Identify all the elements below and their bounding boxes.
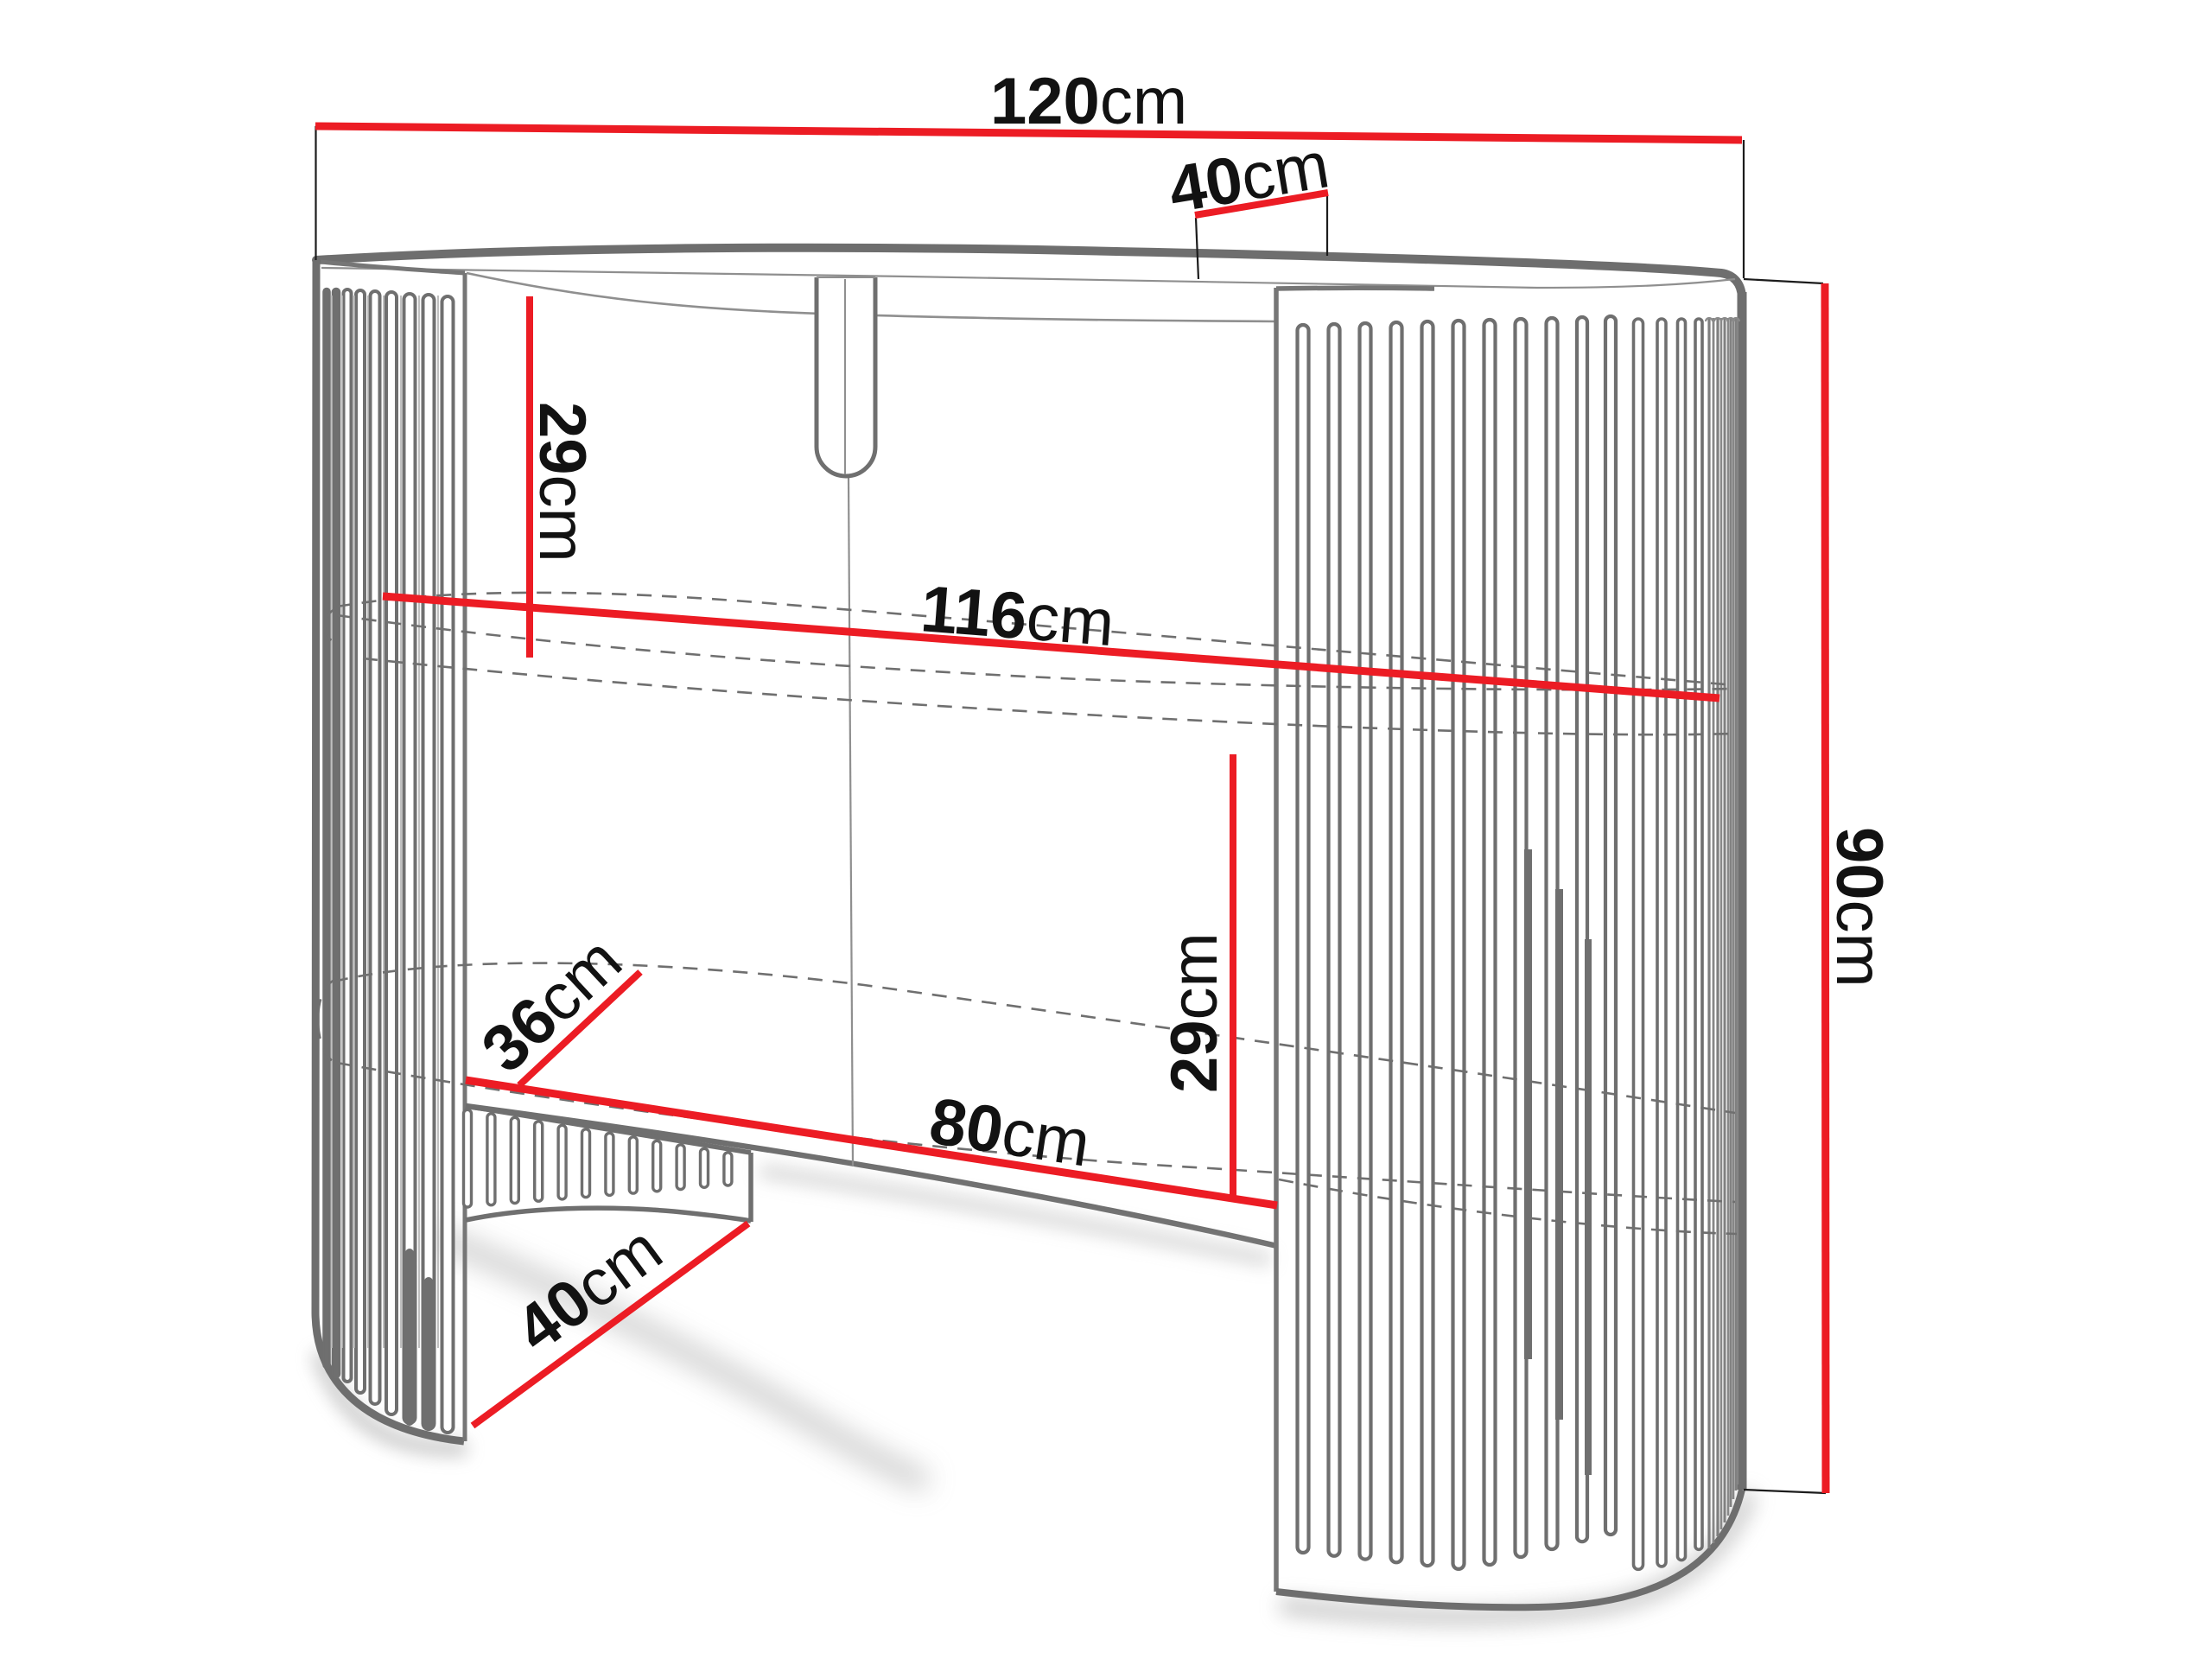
svg-text:90cm: 90cm [1822,827,1896,988]
svg-text:29cm: 29cm [525,402,599,563]
svg-text:116cm: 116cm [918,572,1117,660]
svg-text:29cm: 29cm [1158,932,1231,1093]
svg-text:120cm: 120cm [990,65,1187,138]
